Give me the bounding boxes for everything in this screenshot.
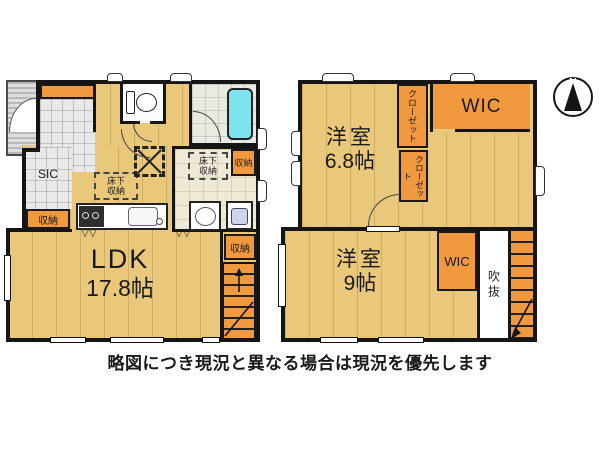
window-marker [291,131,301,156]
void-atrium: 吹抜 [480,231,508,338]
stair-arrow-icon [511,231,533,338]
wall-opening [433,129,455,133]
underfloor-storage: 床下 収納 [94,172,138,200]
wall-segment [163,84,166,124]
burner-icon [92,212,99,219]
underfloor-storage-label: 床下 収納 [107,176,125,197]
wall-segment [150,121,166,124]
storage-label: 収納 [38,212,58,227]
window-marker [535,166,545,196]
toilet-tank-icon [126,91,135,114]
window-marker [291,161,301,186]
ldk-room-label: LDK 17.8帖 [40,244,200,301]
window-marker [322,73,354,82]
bathtub-icon [227,88,253,140]
closet: クローゼット [397,84,428,148]
wall-segment [120,121,140,124]
window-marker [107,73,123,82]
wic-label: WIC [444,254,469,269]
room-a-name: 洋室 [306,126,394,150]
compass: N [553,77,593,117]
wic-label: WIC [462,96,502,118]
washbasin-bowl-icon [195,207,216,226]
shoe-cabinet [40,84,95,99]
storage-closet: 収納 [231,149,256,176]
closet: クローゼット [399,150,428,202]
ldk-size: 17.8帖 [40,275,200,301]
window-marker [450,73,475,82]
wall-segment [302,227,533,231]
compass-north-label: N [555,77,591,88]
room-b-name: 洋室 [318,248,402,272]
window-marker [257,128,267,150]
wall-segment [36,80,260,84]
storage-closet: 収納 [26,209,70,229]
wall-segment [120,84,123,124]
burner-icon [82,212,89,219]
window-marker [378,337,424,343]
walk-in-closet: WIC [430,84,530,132]
stove-icon [79,206,104,227]
floorplan-canvas: SIC 収納 ▽▽ ▽▽ 床下 収納 収納 床下 収納 LDK 17.8帖 収納 [0,0,600,450]
staircase-up [222,262,256,340]
door-opening [366,226,400,232]
window-marker [4,255,11,301]
washing-machine-icon [226,201,253,230]
faucet-icon [156,218,163,225]
wall-segment [22,148,26,232]
sic-label: SIC [24,168,72,182]
wall-segment [508,227,511,340]
void-label: 吹抜 [486,270,503,300]
folding-door-icon: ▽▽ [72,228,106,240]
toilet-bowl-icon [136,93,157,112]
washbasin-icon [189,201,221,231]
window-marker [110,337,164,343]
staircase-down [511,231,533,338]
underfloor-storage: 床下 収納 [188,152,228,180]
kitchen-sink-icon [128,207,158,226]
room-a-size: 6.8帖 [306,150,394,174]
underfloor-storage-label: 床下 収納 [199,156,217,177]
folding-door-icon: ▽▽ [166,228,200,240]
window-marker [257,180,267,202]
window-marker [170,73,192,82]
window-marker [320,337,358,343]
stair-arrow-icon [224,264,254,338]
washing-machine-drum-icon [231,208,248,225]
wall-segment [533,80,537,342]
ldk-name: LDK [40,244,200,275]
caption: 略図につき現況と異なる場合は現況を優先します [0,349,600,374]
walk-in-closet: WIC [437,231,477,291]
closet-label: クローゼット [406,89,419,143]
wall-segment [477,231,480,338]
room-b-label: 洋室 9帖 [318,248,402,296]
room-a-label: 洋室 6.8帖 [306,126,394,174]
storage-label: 収納 [234,156,252,169]
window-marker [202,337,220,343]
window-marker [278,244,286,307]
wall-segment [256,80,260,342]
room-b-size: 9帖 [318,272,402,296]
wall-segment [220,232,223,340]
storage-closet: 収納 [224,234,256,260]
wall-segment [36,80,40,152]
closet-label: クローゼット [402,152,426,200]
window-marker [50,337,86,343]
wall-segment [93,84,96,132]
storage-label: 収納 [230,240,250,255]
